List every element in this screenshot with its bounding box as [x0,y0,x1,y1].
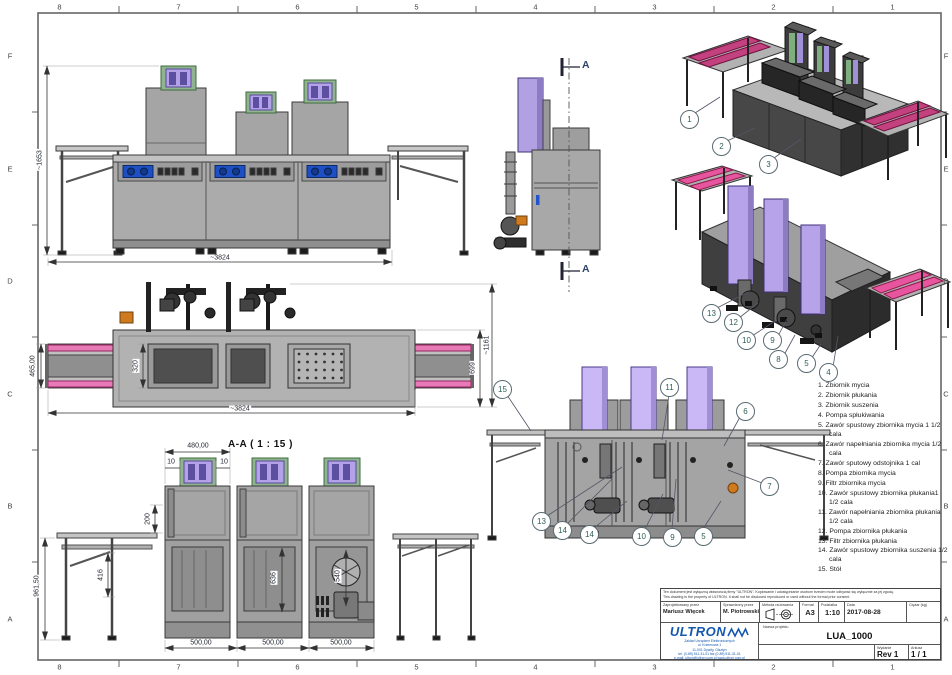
company-logo: ULTRON Zakład Urządzeń Elektronicznych u… [661,623,759,659]
piping [120,282,295,332]
parts-list-item: 5. Zawór spustowy zbiornika mycia 1 1/2 … [818,422,949,440]
iso-view-rear [672,166,950,367]
module-drying [309,458,374,638]
designed-by-cell: Zaprojektowany przez Mariusz Więcek [661,602,721,622]
projection-method-cell: Metoda rzutowania [760,602,800,622]
company-line5: e-mail: ultron@ultron.com.pl www.ultron.… [661,656,758,659]
company-name: ULTRON [670,625,726,638]
title-block: Ten dokument jest wyłączną własnością fi… [660,588,941,660]
parts-list-item: 8. Pompa zbiornika mycia [818,470,949,479]
title-block-spacer [759,645,875,659]
format-value: A3 [800,607,818,617]
parts-list: 1. Zbiornik mycia2. Zbiornik płukania3. … [818,382,949,576]
date-value: 2017-08-28 [845,607,906,616]
designed-by-value: Mariusz Więcek [661,607,720,615]
parts-list-item: 11. Zawór napełniania zbiornika płukania… [818,509,949,527]
parts-list-item: 13. Filtr zbiornika płukania [818,538,949,547]
weight-label: Ciężar (kg) [907,602,940,607]
parts-list-item: 15. Stół [818,566,949,575]
section-view [57,458,478,640]
project-name-label: Nazwa projektu [761,624,789,629]
parts-list-item: 9. Filtr zbiornika mycia [818,480,949,489]
module-washing [165,458,230,638]
edition-cell: Wydanie Rev 1 [875,645,909,659]
front-view [56,66,468,255]
edition-value: Rev 1 [875,650,908,659]
project-name-cell: Nazwa projektu LUA_1000 [759,623,940,645]
parts-list-item: 14. Zawór spustowy zbiornika suszenia 1/… [818,547,949,565]
projection-method-label: Metoda rzutowania [760,602,799,607]
rear-open-view [487,367,830,540]
parts-list-item: 3. Zbiornik suszenia [818,402,949,411]
date-cell: Data 2017-08-28 [845,602,907,622]
drawing-artwork [0,0,952,675]
sheet-number-value: 1 / 1 [909,650,940,659]
top-view [45,282,474,407]
iso-view-front [683,22,948,180]
parts-list-item: 4. Pompa spłukiwania [818,412,949,421]
checked-by-cell: Sprawdzony przez M. Piotrowski [721,602,760,622]
parts-list-item: 7. Zawór sputowy odstojnika 1 cal [818,460,949,469]
parts-list-item: 12. Pompa zbiornika płukania [818,528,949,537]
scale-cell: Podziałka 1:10 [819,602,845,622]
section-view-label: A-A ( 1 : 15 ) [228,439,293,450]
parts-list-item: 6. Zawór napełniania zbiornika mycia 1/2… [818,441,949,459]
disclaimer-en: This drawing is the property of ULTRON. … [663,595,938,600]
parts-list-item: 10. Zawór spustowy zbiornika płukania1 1… [818,490,949,508]
side-view [494,58,600,292]
section-marker-top: A [582,59,590,71]
section-marker-bottom: A [582,263,590,275]
weight-cell: Ciężar (kg) [907,602,940,622]
company-address: Zakład Urządzeń Elektronicznych ul. Krze… [661,639,758,659]
parts-list-item: 2. Zbiornik płukania [818,392,949,401]
checked-by-value: M. Piotrowski [721,607,759,615]
format-cell: Format A3 [800,602,819,622]
parts-list-item: 1. Zbiornik mycia [818,382,949,391]
module-rinsing [237,458,302,638]
control-panels [118,162,386,181]
scale-value: 1:10 [819,607,844,617]
first-angle-projection-icon [760,608,799,621]
disclaimer: Ten dokument jest wyłączną własnością fi… [661,589,940,602]
sheet-number-cell: Arkusz 1 / 1 [909,645,940,659]
drawing-sheet: A-A ( 1 : 15 ) A A 8877665544332211FFEED… [0,0,952,675]
checked-by-label: Sprawdzony przez [721,602,759,607]
logo-wave-icon [727,627,749,638]
